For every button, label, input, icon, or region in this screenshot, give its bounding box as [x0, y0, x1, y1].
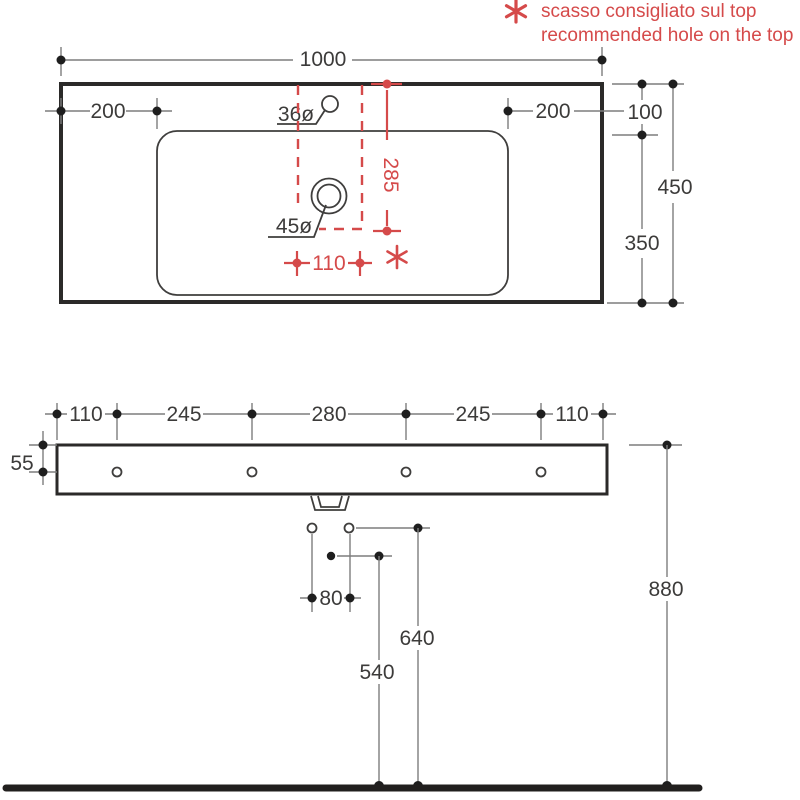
- dim-dot: [638, 131, 647, 140]
- bracket-hole: [345, 524, 354, 533]
- dim-spacing-3: 280: [311, 403, 346, 426]
- dim-dot: [669, 80, 678, 89]
- dim-fixing-offset-label: 55: [10, 452, 33, 475]
- washbasin-technical-drawing: scasso consigliato sul top recommended h…: [0, 0, 800, 800]
- dim-drain-holes-spacing-label: 80: [319, 587, 342, 610]
- dim-hole-width-label: 110: [312, 252, 345, 275]
- dim-left-offset-label: 200: [90, 100, 125, 123]
- red-dim-dot: [293, 259, 302, 268]
- drain-collar-inner: [318, 496, 342, 507]
- dim-spacing-2: 245: [166, 403, 201, 426]
- dim-depths: 100 450 350: [607, 80, 693, 308]
- dim-dot: [53, 410, 62, 419]
- bracket-hole: [308, 524, 317, 533]
- dim-spacing-1: 110: [69, 403, 102, 426]
- dim-dot: [248, 410, 257, 419]
- dim-dot: [599, 410, 608, 419]
- dim-total-depth-label: 450: [657, 176, 692, 199]
- red-dim-dot: [383, 80, 392, 89]
- dim-dot: [638, 80, 647, 89]
- dim-overall-width: 1000: [57, 47, 607, 76]
- dim-overall-width-label: 1000: [300, 48, 347, 71]
- legend-text-italian: scasso consigliato sul top: [541, 1, 756, 22]
- basin-front-outline: [57, 445, 607, 494]
- dim-dot: [669, 299, 678, 308]
- dim-rim-height-label: 880: [648, 578, 683, 601]
- dim-dot: [57, 107, 66, 116]
- dim-dot: [402, 410, 411, 419]
- dim-dot: [504, 107, 513, 116]
- legend-text-english: recommended hole on the top: [541, 25, 793, 46]
- legend: scasso consigliato sul top recommended h…: [507, 1, 794, 47]
- dim-dot: [346, 594, 355, 603]
- dim-dot: [113, 410, 122, 419]
- dim-dot: [598, 56, 607, 65]
- top-view: 1000 36ø 45ø 285: [45, 47, 693, 308]
- dim-spacing-5: 110: [555, 403, 588, 426]
- technical-drawing-page: scasso consigliato sul top recommended h…: [0, 0, 800, 800]
- dim-corner-offset-label: 100: [627, 101, 662, 124]
- dim-dot: [308, 594, 317, 603]
- dim-siphon-height: 540: [337, 552, 395, 792]
- tap-hole-label: 36ø: [278, 103, 314, 126]
- dim-dot: [638, 299, 647, 308]
- dim-drain-height-label: 640: [399, 627, 434, 650]
- dim-fixing-offset: 55: [10, 431, 57, 485]
- dim-dot: [153, 107, 162, 116]
- red-dim-dot: [383, 227, 392, 236]
- dim-spacing-row: 110 245 280 245 110: [45, 403, 616, 440]
- dim-drain-height: 640: [356, 524, 435, 792]
- dim-drain-depth-label: 350: [624, 232, 659, 255]
- dim-right-offset-label: 200: [535, 100, 570, 123]
- front-view: 110 245 280 245 110 55: [6, 403, 699, 791]
- red-dim-dot: [356, 259, 365, 268]
- asterisk-icon: [507, 1, 526, 23]
- dim-drain-holes-spacing: 80: [300, 534, 361, 612]
- dim-dot: [537, 410, 546, 419]
- dim-dot: [57, 56, 66, 65]
- dim-hole-offset-label: 285: [379, 157, 402, 192]
- dim-dot: [39, 441, 48, 450]
- dim-spacing-4: 245: [455, 403, 490, 426]
- dim-siphon-height-label: 540: [359, 661, 394, 684]
- drain-center-dot: [327, 552, 335, 560]
- dim-rim-height: 880: [629, 441, 684, 792]
- dim-dot: [39, 468, 48, 477]
- drain-hole-label: 45ø: [276, 215, 312, 238]
